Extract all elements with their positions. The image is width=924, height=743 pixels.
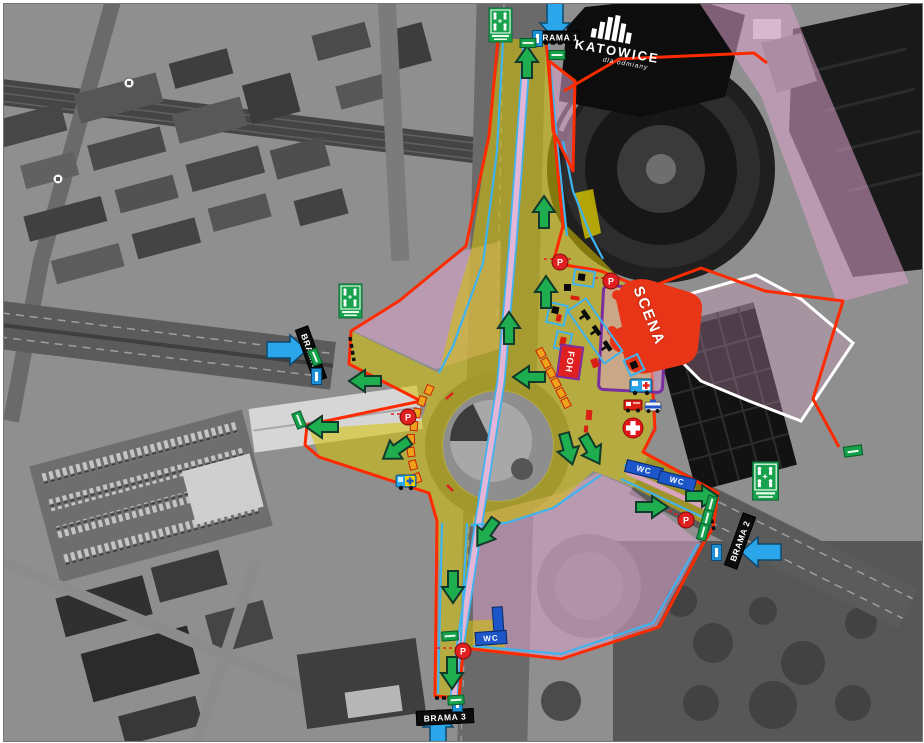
parking-marker: P: [400, 409, 417, 426]
venue-logo: KATOWICE dla odmiany: [573, 9, 700, 79]
wc-point: WC: [657, 470, 697, 492]
foh-box: FOH: [556, 343, 584, 380]
info-point-marker: [311, 368, 322, 385]
evacuation-route-sign: [520, 38, 537, 48]
foh-label: FOH: [564, 350, 577, 373]
evacuation-route-sign: [447, 694, 465, 705]
stage-label: SCENA: [629, 284, 668, 348]
info-point-marker: [711, 544, 722, 561]
evacuation-route-sign: [549, 50, 566, 60]
parking-marker: P: [552, 254, 569, 271]
parking-marker: P: [603, 273, 620, 290]
gate-label-brama-2: BRAMA 2: [724, 512, 756, 569]
evacuation-route-sign: [843, 444, 863, 458]
parking-marker: P: [678, 512, 695, 529]
evacuation-route-sign: [291, 410, 307, 430]
gate-label-brama-3: BRAMA 3: [416, 708, 475, 726]
wc-point: WC: [475, 630, 508, 646]
site-map: BRAMA 1 BRAMA 2 BRAMA 3 BRAMA 4 SCENA FO…: [3, 3, 923, 742]
evacuation-route-sign: [441, 630, 459, 641]
parking-marker: P: [455, 643, 472, 660]
evacuation-route-sign: [696, 522, 710, 541]
